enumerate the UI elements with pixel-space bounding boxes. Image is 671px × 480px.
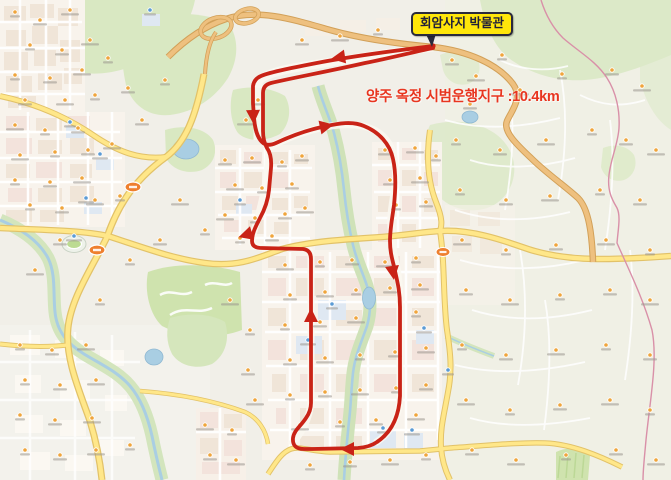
museum-callout[interactable]: 회암사지 박물관 — [411, 12, 513, 36]
map-viewport[interactable]: 회암사지 박물관 양주 옥정 시범운행지구 :10.4km — [0, 0, 671, 480]
map-canvas — [0, 0, 671, 480]
route-info-text: 양주 옥정 시범운행지구 :10.4km — [366, 85, 560, 106]
museum-callout-label: 회암사지 박물관 — [420, 16, 504, 30]
